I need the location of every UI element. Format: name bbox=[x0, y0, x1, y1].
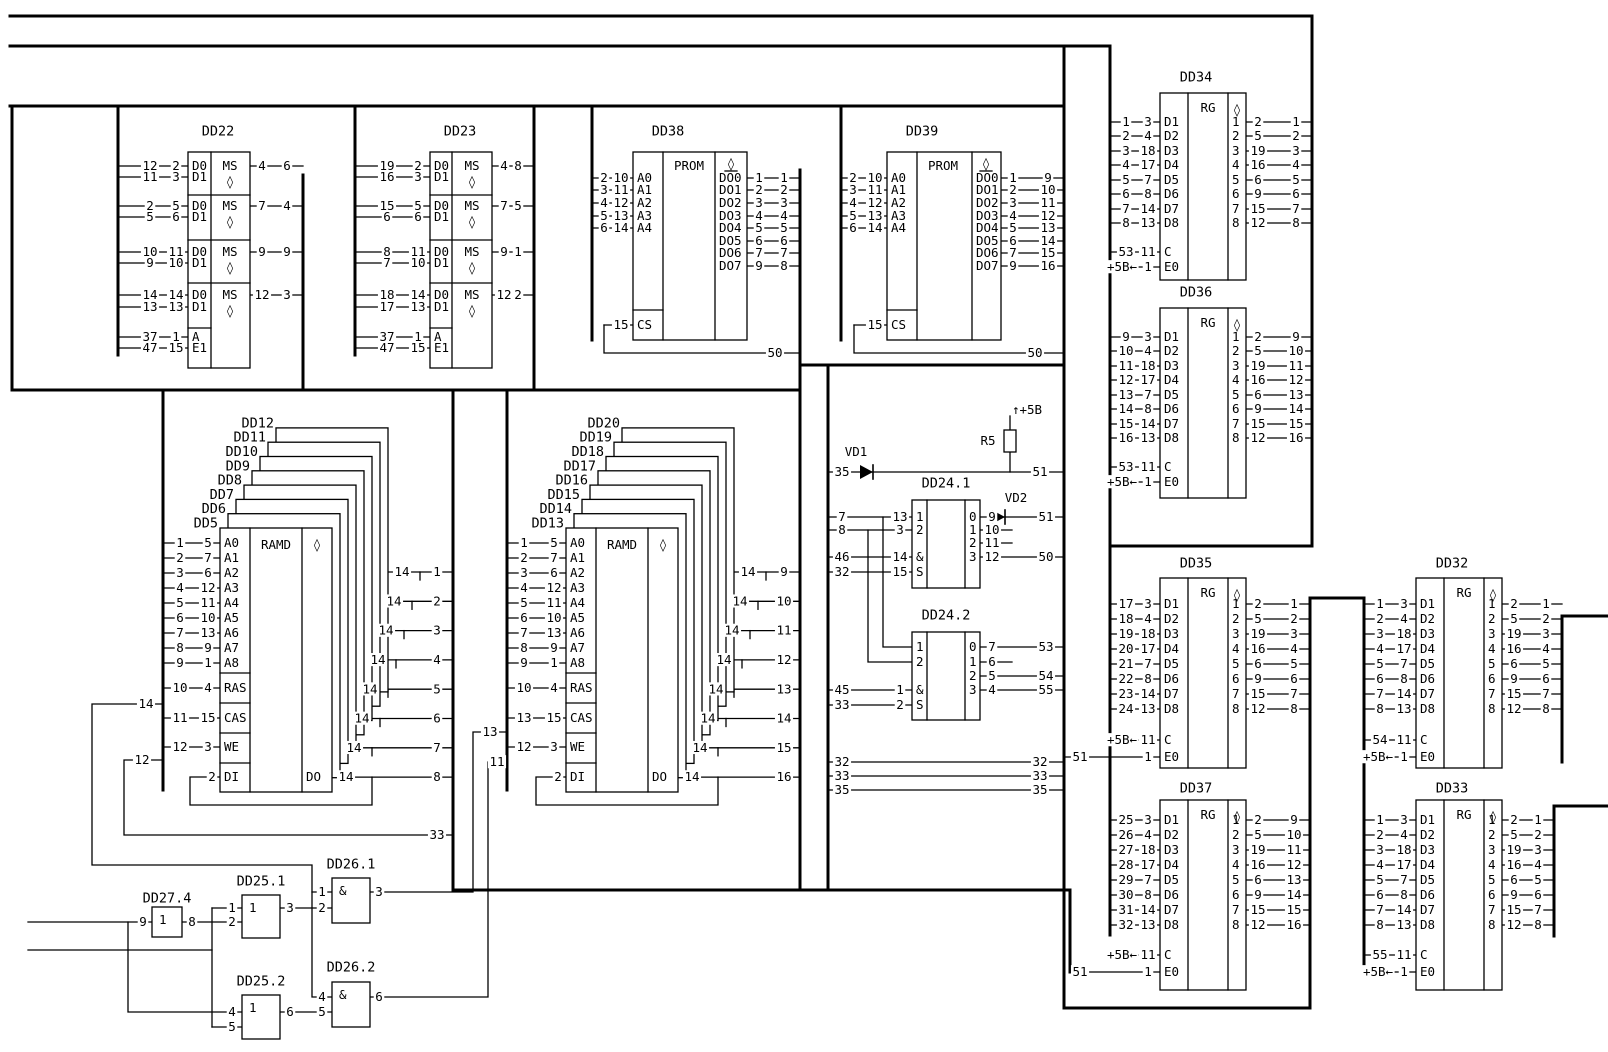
gate-dd26_2 bbox=[332, 982, 370, 1027]
svg-text:8: 8 bbox=[780, 258, 788, 273]
svg-text:D6: D6 bbox=[1164, 671, 1179, 686]
svg-text:7: 7 bbox=[1144, 872, 1152, 887]
svg-text:5: 5 bbox=[988, 668, 996, 683]
svg-text:2: 2 bbox=[1232, 128, 1240, 143]
svg-text:DD26.1: DD26.1 bbox=[327, 856, 376, 872]
svg-text:CAS: CAS bbox=[570, 710, 593, 725]
svg-text:14: 14 bbox=[1288, 401, 1303, 416]
svg-text:RAS: RAS bbox=[224, 680, 247, 695]
svg-text:3: 3 bbox=[1488, 626, 1496, 641]
svg-text:6: 6 bbox=[1376, 671, 1384, 686]
svg-text:3: 3 bbox=[1232, 358, 1240, 373]
svg-text:2: 2 bbox=[1488, 827, 1496, 842]
svg-text:A6: A6 bbox=[570, 625, 585, 640]
svg-text:2: 2 bbox=[1232, 611, 1240, 626]
svg-text:5: 5 bbox=[1232, 387, 1240, 402]
svg-text:8: 8 bbox=[1290, 701, 1298, 716]
svg-text:10: 10 bbox=[172, 680, 187, 695]
svg-text:9: 9 bbox=[1254, 671, 1262, 686]
svg-text:14: 14 bbox=[776, 711, 791, 726]
svg-text:6: 6 bbox=[172, 209, 180, 224]
svg-text:19: 19 bbox=[1250, 626, 1265, 641]
svg-text:2: 2 bbox=[1292, 128, 1300, 143]
svg-text:DD23: DD23 bbox=[444, 123, 477, 139]
svg-text:14: 14 bbox=[708, 681, 723, 696]
svg-text:11: 11 bbox=[1140, 459, 1155, 474]
svg-text:D7: D7 bbox=[1164, 902, 1179, 917]
svg-text:14: 14 bbox=[692, 740, 707, 755]
svg-text:D8: D8 bbox=[1164, 917, 1179, 932]
svg-text:5: 5 bbox=[1290, 656, 1298, 671]
svg-text:9: 9 bbox=[1122, 329, 1130, 344]
svg-text:4: 4 bbox=[176, 580, 184, 595]
svg-text:14: 14 bbox=[386, 593, 401, 608]
svg-text:VD1: VD1 bbox=[845, 444, 868, 459]
svg-text:11: 11 bbox=[1140, 732, 1155, 747]
stack-dd12 bbox=[220, 428, 388, 792]
svg-text:7: 7 bbox=[988, 639, 996, 654]
svg-text:30: 30 bbox=[1118, 887, 1133, 902]
svg-text:0: 0 bbox=[969, 639, 977, 654]
svg-text:9: 9 bbox=[520, 655, 528, 670]
svg-text:3: 3 bbox=[204, 739, 212, 754]
svg-text:2: 2 bbox=[1290, 611, 1298, 626]
svg-text:2: 2 bbox=[969, 535, 977, 550]
svg-text:1: 1 bbox=[249, 900, 257, 915]
svg-text:2: 2 bbox=[1254, 596, 1262, 611]
svg-text:1: 1 bbox=[916, 639, 924, 654]
svg-text:47: 47 bbox=[379, 340, 394, 355]
svg-text:10: 10 bbox=[1118, 343, 1133, 358]
svg-text:54: 54 bbox=[1372, 732, 1387, 747]
svg-text:54: 54 bbox=[1038, 668, 1053, 683]
svg-text:12: 12 bbox=[1288, 372, 1303, 387]
svg-text:2: 2 bbox=[228, 914, 236, 929]
svg-text:11: 11 bbox=[200, 595, 215, 610]
svg-text:15: 15 bbox=[613, 317, 628, 332]
svg-text:8: 8 bbox=[1232, 215, 1240, 230]
svg-text:D2: D2 bbox=[1164, 343, 1179, 358]
svg-text:7: 7 bbox=[1534, 902, 1542, 917]
svg-text:17: 17 bbox=[1140, 157, 1155, 172]
svg-text:4: 4 bbox=[1232, 857, 1240, 872]
svg-text:2: 2 bbox=[916, 654, 924, 669]
svg-text:DD24.2: DD24.2 bbox=[922, 607, 971, 623]
svg-text:4: 4 bbox=[520, 580, 528, 595]
svg-text:10: 10 bbox=[776, 593, 791, 608]
svg-text:7: 7 bbox=[1488, 686, 1496, 701]
svg-text:7: 7 bbox=[550, 550, 558, 565]
svg-text:◊: ◊ bbox=[468, 303, 476, 318]
svg-text:11: 11 bbox=[1286, 842, 1301, 857]
svg-text:7: 7 bbox=[1232, 201, 1240, 216]
svg-text:RG: RG bbox=[1200, 807, 1215, 822]
svg-text:◊: ◊ bbox=[226, 303, 234, 318]
svg-text:2: 2 bbox=[1254, 114, 1262, 129]
svg-text:7: 7 bbox=[1144, 387, 1152, 402]
svg-text:11: 11 bbox=[142, 169, 157, 184]
svg-text:33: 33 bbox=[429, 827, 444, 842]
svg-text:4: 4 bbox=[1292, 157, 1300, 172]
svg-text:3: 3 bbox=[1488, 842, 1496, 857]
schematic-canvas: 122D0113D125D056D11011D0910D11414D01313D… bbox=[0, 0, 1608, 1052]
svg-text:2: 2 bbox=[208, 769, 216, 784]
svg-text:4: 4 bbox=[1144, 128, 1152, 143]
svg-text:17: 17 bbox=[1396, 857, 1411, 872]
svg-text:3: 3 bbox=[1290, 626, 1298, 641]
svg-text:2: 2 bbox=[176, 550, 184, 565]
svg-text:5: 5 bbox=[1510, 611, 1518, 626]
svg-text:6: 6 bbox=[375, 989, 383, 1004]
svg-text:5: 5 bbox=[1376, 872, 1384, 887]
svg-text:14: 14 bbox=[1118, 401, 1133, 416]
svg-text:20: 20 bbox=[1118, 641, 1133, 656]
svg-text:6: 6 bbox=[1542, 671, 1550, 686]
svg-text:12: 12 bbox=[1250, 917, 1265, 932]
svg-text:MS: MS bbox=[464, 244, 479, 259]
svg-text:2: 2 bbox=[1542, 611, 1550, 626]
svg-text:5: 5 bbox=[1534, 872, 1542, 887]
svg-text:18: 18 bbox=[1140, 842, 1155, 857]
svg-text:35: 35 bbox=[834, 464, 849, 479]
stack-dd20 bbox=[566, 428, 734, 792]
svg-text:6: 6 bbox=[204, 565, 212, 580]
svg-text:13: 13 bbox=[546, 625, 561, 640]
svg-text:22: 22 bbox=[1118, 671, 1133, 686]
svg-text:14: 14 bbox=[1396, 686, 1411, 701]
svg-text:C: C bbox=[1164, 244, 1172, 259]
svg-text:15: 15 bbox=[1506, 902, 1521, 917]
svg-text:12: 12 bbox=[496, 287, 511, 302]
svg-text:18: 18 bbox=[1396, 842, 1411, 857]
svg-text:5: 5 bbox=[1488, 656, 1496, 671]
svg-text:+5B←: +5B← bbox=[1107, 947, 1138, 962]
svg-text:3: 3 bbox=[1144, 812, 1152, 827]
svg-text:4: 4 bbox=[1534, 857, 1542, 872]
svg-text:1: 1 bbox=[1290, 596, 1298, 611]
svg-text:18: 18 bbox=[1140, 143, 1155, 158]
svg-text:D6: D6 bbox=[1420, 671, 1435, 686]
svg-text:6: 6 bbox=[1254, 172, 1262, 187]
svg-text:9: 9 bbox=[1254, 186, 1262, 201]
gate-dd27_4 bbox=[152, 907, 182, 937]
svg-text:14: 14 bbox=[1140, 902, 1155, 917]
svg-text:11: 11 bbox=[1140, 244, 1155, 259]
svg-text:14: 14 bbox=[378, 623, 393, 638]
svg-text:8: 8 bbox=[176, 640, 184, 655]
svg-text:14: 14 bbox=[1140, 686, 1155, 701]
svg-text:A4: A4 bbox=[637, 220, 652, 235]
svg-text:13: 13 bbox=[482, 724, 497, 739]
svg-text:5: 5 bbox=[1542, 656, 1550, 671]
svg-text:9: 9 bbox=[139, 914, 147, 929]
svg-text:8: 8 bbox=[1400, 671, 1408, 686]
svg-text:7: 7 bbox=[1232, 686, 1240, 701]
svg-text:11: 11 bbox=[172, 710, 187, 725]
svg-text:7: 7 bbox=[1400, 872, 1408, 887]
svg-text:12: 12 bbox=[172, 739, 187, 754]
svg-text:+5B←: +5B← bbox=[1363, 749, 1394, 764]
svg-text:A5: A5 bbox=[570, 610, 585, 625]
svg-text:D2: D2 bbox=[1420, 827, 1435, 842]
svg-text:S: S bbox=[916, 697, 924, 712]
svg-text:2: 2 bbox=[916, 522, 924, 537]
svg-text:7: 7 bbox=[1400, 656, 1408, 671]
svg-text:C: C bbox=[1164, 459, 1172, 474]
svg-text:5: 5 bbox=[1254, 343, 1262, 358]
svg-text:◊: ◊ bbox=[313, 537, 321, 552]
svg-text:18: 18 bbox=[1140, 626, 1155, 641]
svg-text:7: 7 bbox=[258, 198, 266, 213]
svg-text:21: 21 bbox=[1118, 656, 1133, 671]
svg-text:13: 13 bbox=[1286, 872, 1301, 887]
svg-text:6: 6 bbox=[1232, 671, 1240, 686]
svg-text:3: 3 bbox=[375, 884, 383, 899]
svg-text:1: 1 bbox=[1376, 596, 1384, 611]
VD1-diode bbox=[860, 465, 873, 479]
svg-text:R5: R5 bbox=[980, 433, 995, 448]
svg-text:13: 13 bbox=[1288, 387, 1303, 402]
svg-text:6: 6 bbox=[1254, 872, 1262, 887]
svg-text:D1: D1 bbox=[434, 169, 449, 184]
svg-text:2: 2 bbox=[433, 593, 441, 608]
svg-text:D1: D1 bbox=[192, 169, 207, 184]
svg-text:5: 5 bbox=[1254, 128, 1262, 143]
svg-text:DD38: DD38 bbox=[652, 123, 685, 139]
svg-text:3: 3 bbox=[283, 287, 291, 302]
svg-text:A4: A4 bbox=[570, 595, 585, 610]
svg-text:2: 2 bbox=[1232, 827, 1240, 842]
svg-text:9: 9 bbox=[1510, 671, 1518, 686]
svg-text:D7: D7 bbox=[1164, 686, 1179, 701]
svg-text:15: 15 bbox=[867, 317, 882, 332]
svg-text:17: 17 bbox=[1396, 641, 1411, 656]
svg-text:1: 1 bbox=[1122, 114, 1130, 129]
svg-text:MS: MS bbox=[222, 198, 237, 213]
svg-text:3: 3 bbox=[433, 623, 441, 638]
svg-text:D1: D1 bbox=[1164, 114, 1179, 129]
svg-text:1: 1 bbox=[204, 655, 212, 670]
svg-text:53: 53 bbox=[1038, 639, 1053, 654]
svg-text:DD5: DD5 bbox=[194, 515, 218, 531]
svg-text:CS: CS bbox=[891, 317, 906, 332]
svg-text:9: 9 bbox=[146, 255, 154, 270]
svg-text:7: 7 bbox=[500, 198, 508, 213]
svg-text:6: 6 bbox=[600, 220, 608, 235]
svg-text:7: 7 bbox=[520, 625, 528, 640]
svg-text:25: 25 bbox=[1118, 812, 1133, 827]
svg-text:D4: D4 bbox=[1420, 857, 1435, 872]
svg-text:3: 3 bbox=[1376, 626, 1384, 641]
svg-text:16: 16 bbox=[1286, 917, 1301, 932]
svg-text:D1: D1 bbox=[434, 255, 449, 270]
svg-text:3: 3 bbox=[414, 169, 422, 184]
svg-text:◊: ◊ bbox=[1233, 587, 1241, 602]
svg-text:3: 3 bbox=[1144, 114, 1152, 129]
svg-text:15: 15 bbox=[1288, 416, 1303, 431]
svg-text:18: 18 bbox=[1396, 626, 1411, 641]
svg-text:12: 12 bbox=[254, 287, 269, 302]
svg-text:D5: D5 bbox=[1420, 872, 1435, 887]
svg-text:6: 6 bbox=[1510, 656, 1518, 671]
svg-text:A3: A3 bbox=[224, 580, 239, 595]
svg-text:DD22: DD22 bbox=[202, 123, 235, 139]
svg-text:8: 8 bbox=[1400, 887, 1408, 902]
svg-text:D7: D7 bbox=[1420, 686, 1435, 701]
svg-text:D3: D3 bbox=[1164, 358, 1179, 373]
svg-text:55: 55 bbox=[1038, 682, 1053, 697]
svg-text:14: 14 bbox=[354, 711, 369, 726]
svg-text:14: 14 bbox=[370, 652, 385, 667]
svg-text:6: 6 bbox=[1488, 671, 1496, 686]
svg-text:A4: A4 bbox=[891, 220, 906, 235]
svg-text:8: 8 bbox=[188, 914, 196, 929]
svg-text:13: 13 bbox=[1396, 701, 1411, 716]
svg-text:A7: A7 bbox=[224, 640, 239, 655]
svg-text:4: 4 bbox=[1488, 641, 1496, 656]
svg-text:6: 6 bbox=[849, 220, 857, 235]
svg-text:1: 1 bbox=[1400, 964, 1408, 979]
svg-text:CS: CS bbox=[637, 317, 652, 332]
svg-text:12: 12 bbox=[134, 752, 149, 767]
svg-text:5: 5 bbox=[1254, 827, 1262, 842]
svg-text:5: 5 bbox=[1122, 172, 1130, 187]
svg-text:+5B←: +5B← bbox=[1363, 964, 1394, 979]
svg-text:D3: D3 bbox=[1164, 842, 1179, 857]
svg-text:19: 19 bbox=[1250, 358, 1265, 373]
svg-text:&: & bbox=[916, 549, 924, 564]
svg-text:35: 35 bbox=[1032, 782, 1047, 797]
svg-text:2: 2 bbox=[318, 900, 326, 915]
svg-text:5: 5 bbox=[1292, 172, 1300, 187]
svg-text:6: 6 bbox=[1534, 887, 1542, 902]
svg-text:32: 32 bbox=[1118, 917, 1133, 932]
svg-text:8: 8 bbox=[1232, 701, 1240, 716]
svg-text:2: 2 bbox=[969, 668, 977, 683]
svg-text:5: 5 bbox=[318, 1004, 326, 1019]
svg-text:15: 15 bbox=[892, 564, 907, 579]
svg-text:DO: DO bbox=[652, 769, 667, 784]
svg-text:VD2: VD2 bbox=[1005, 490, 1028, 505]
svg-text:50: 50 bbox=[767, 345, 782, 360]
svg-text:D8: D8 bbox=[1164, 430, 1179, 445]
svg-text:12: 12 bbox=[984, 549, 999, 564]
svg-text:5: 5 bbox=[433, 681, 441, 696]
svg-text:1: 1 bbox=[176, 535, 184, 550]
svg-text:8: 8 bbox=[1232, 430, 1240, 445]
svg-text:◊: ◊ bbox=[1233, 102, 1241, 117]
svg-text:50: 50 bbox=[1038, 549, 1053, 564]
svg-text:12: 12 bbox=[1250, 430, 1265, 445]
svg-text:15: 15 bbox=[546, 710, 561, 725]
svg-text:D1: D1 bbox=[434, 299, 449, 314]
svg-text:6: 6 bbox=[1232, 401, 1240, 416]
svg-text:D3: D3 bbox=[1420, 842, 1435, 857]
svg-text:8: 8 bbox=[1376, 917, 1384, 932]
svg-text:16: 16 bbox=[379, 169, 394, 184]
svg-text:53: 53 bbox=[1118, 459, 1133, 474]
svg-text:D2: D2 bbox=[1164, 827, 1179, 842]
svg-text:5: 5 bbox=[1254, 611, 1262, 626]
svg-text:7: 7 bbox=[1292, 201, 1300, 216]
svg-text:51: 51 bbox=[1072, 964, 1087, 979]
svg-text:◊: ◊ bbox=[468, 174, 476, 189]
svg-text:1: 1 bbox=[969, 654, 977, 669]
svg-text:6: 6 bbox=[520, 610, 528, 625]
svg-text:19: 19 bbox=[1250, 842, 1265, 857]
svg-text:6: 6 bbox=[1254, 387, 1262, 402]
svg-text:6: 6 bbox=[1376, 887, 1384, 902]
svg-text:RAS: RAS bbox=[570, 680, 593, 695]
svg-text:12: 12 bbox=[1250, 701, 1265, 716]
svg-text:8: 8 bbox=[1534, 917, 1542, 932]
svg-text:14: 14 bbox=[346, 740, 361, 755]
svg-text:16: 16 bbox=[1288, 430, 1303, 445]
svg-text:E1: E1 bbox=[434, 340, 449, 355]
svg-text:◊: ◊ bbox=[468, 214, 476, 229]
svg-text:&: & bbox=[339, 883, 347, 898]
svg-text:RG: RG bbox=[1200, 585, 1215, 600]
svg-text:D6: D6 bbox=[1164, 887, 1179, 902]
svg-text:17: 17 bbox=[379, 299, 394, 314]
svg-text:RG: RG bbox=[1456, 807, 1471, 822]
svg-text:9: 9 bbox=[1510, 887, 1518, 902]
svg-text:DD13: DD13 bbox=[531, 515, 564, 531]
svg-text:8: 8 bbox=[1232, 917, 1240, 932]
svg-text:7: 7 bbox=[1144, 656, 1152, 671]
svg-text:A7: A7 bbox=[570, 640, 585, 655]
svg-text:1: 1 bbox=[550, 655, 558, 670]
svg-text:+5B←: +5B← bbox=[1107, 474, 1138, 489]
svg-text:55: 55 bbox=[1372, 947, 1387, 962]
svg-text:46: 46 bbox=[834, 549, 849, 564]
svg-text:27: 27 bbox=[1118, 842, 1133, 857]
svg-text:14: 14 bbox=[867, 220, 882, 235]
svg-text:8: 8 bbox=[520, 640, 528, 655]
svg-text:E0: E0 bbox=[1164, 259, 1179, 274]
svg-text:17: 17 bbox=[1140, 372, 1155, 387]
svg-text:CAS: CAS bbox=[224, 710, 247, 725]
svg-text:D7: D7 bbox=[1164, 201, 1179, 216]
svg-text:DO: DO bbox=[306, 769, 321, 784]
svg-text:MS: MS bbox=[222, 287, 237, 302]
svg-text:DD39: DD39 bbox=[906, 123, 939, 139]
svg-text:33: 33 bbox=[834, 768, 849, 783]
svg-text:17: 17 bbox=[1140, 857, 1155, 872]
svg-text:5: 5 bbox=[550, 535, 558, 550]
svg-text:6: 6 bbox=[414, 209, 422, 224]
svg-text:D6: D6 bbox=[1164, 401, 1179, 416]
svg-text:19: 19 bbox=[1506, 626, 1521, 641]
svg-text:14: 14 bbox=[684, 769, 699, 784]
svg-text:D1: D1 bbox=[192, 255, 207, 270]
svg-text:6: 6 bbox=[176, 610, 184, 625]
svg-text:9: 9 bbox=[1292, 329, 1300, 344]
svg-text:15: 15 bbox=[1250, 416, 1265, 431]
svg-text:12: 12 bbox=[516, 739, 531, 754]
svg-text:7: 7 bbox=[1290, 686, 1298, 701]
svg-text:45: 45 bbox=[834, 682, 849, 697]
svg-text:C: C bbox=[1164, 732, 1172, 747]
svg-text:12: 12 bbox=[1506, 701, 1521, 716]
svg-text:10: 10 bbox=[410, 255, 425, 270]
svg-text:4: 4 bbox=[1144, 611, 1152, 626]
svg-text:10: 10 bbox=[168, 255, 183, 270]
svg-text:13: 13 bbox=[1140, 701, 1155, 716]
svg-text:A1: A1 bbox=[570, 550, 585, 565]
svg-text:17: 17 bbox=[1140, 641, 1155, 656]
svg-text:D5: D5 bbox=[1164, 387, 1179, 402]
